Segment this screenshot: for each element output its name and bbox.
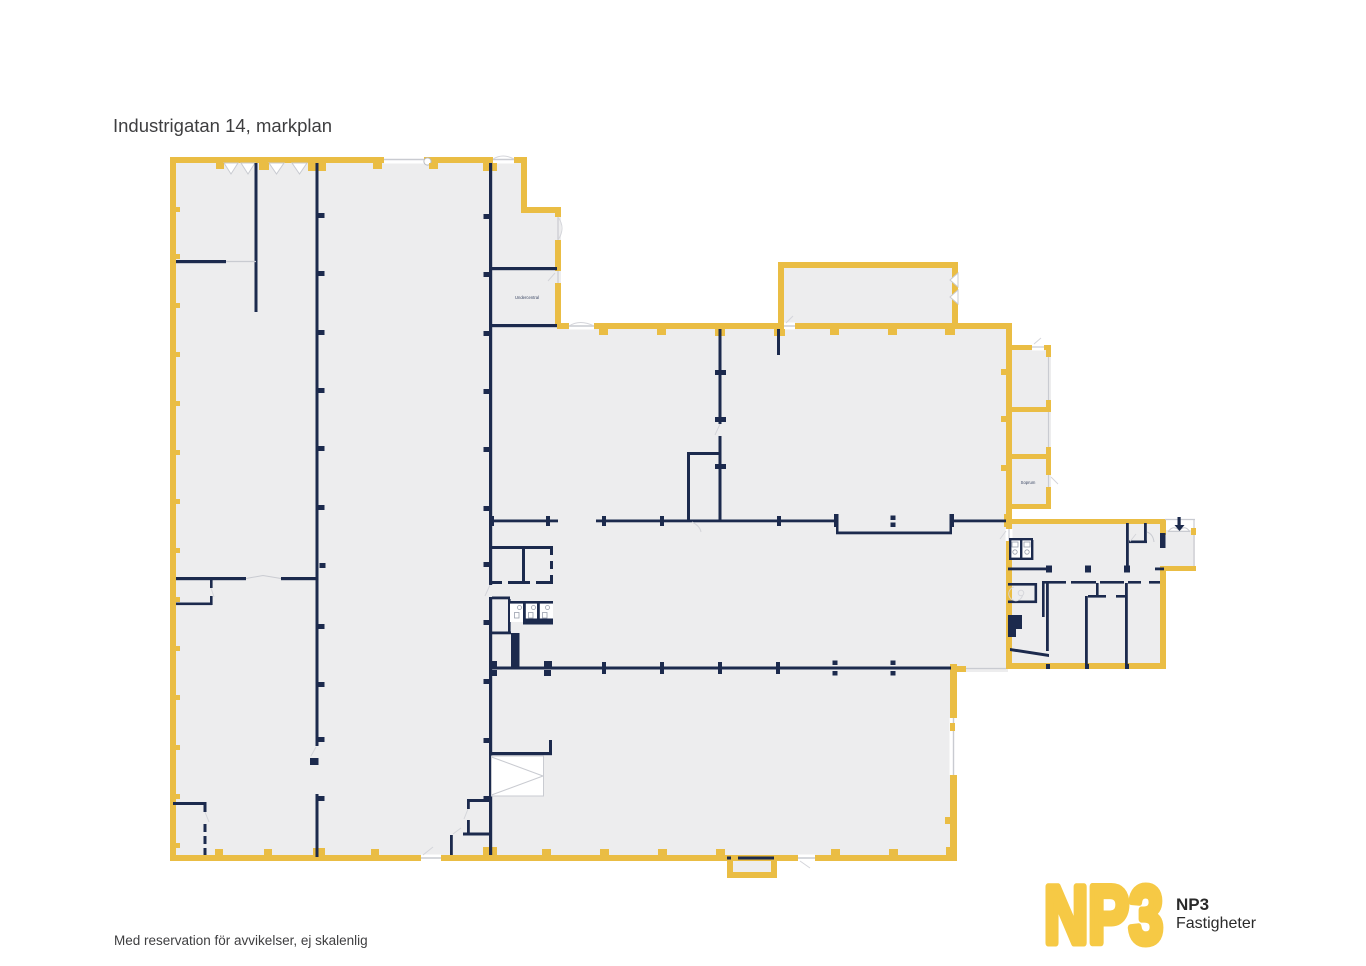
svg-text:NP3: NP3 <box>1176 895 1209 914</box>
svg-text:Fastigheter: Fastigheter <box>1176 915 1257 932</box>
svg-text:Med reservation för avvikelser: Med reservation för avvikelser, ej skale… <box>114 933 368 948</box>
svg-text:Industrigatan 14, markplan: Industrigatan 14, markplan <box>113 115 332 136</box>
svg-text:Undercentral: Undercentral <box>515 295 539 300</box>
svg-text:NP3: NP3 <box>1044 870 1163 961</box>
svg-text:Soprum: Soprum <box>1021 480 1036 485</box>
